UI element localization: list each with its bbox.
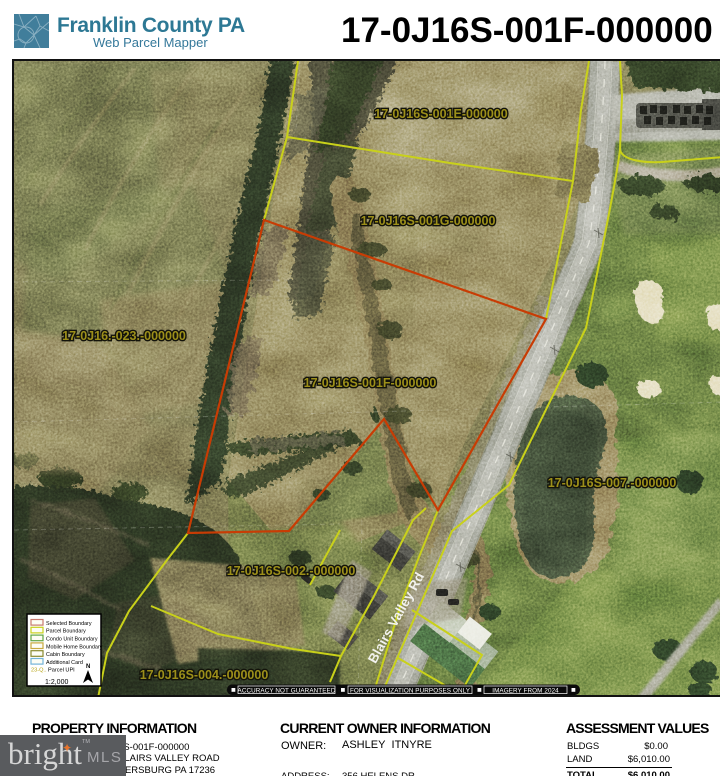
svg-text:1:2,000: 1:2,000 — [45, 679, 68, 686]
svg-text:Parcel UPI: Parcel UPI — [48, 668, 75, 674]
svg-text:Additional Card: Additional Card — [46, 660, 83, 666]
svg-text:17-0J16S-007.-000000: 17-0J16S-007.-000000 — [548, 476, 677, 490]
svg-text:Mobile Home Boundary: Mobile Home Boundary — [46, 644, 103, 650]
svg-text:17-0J16S-001G-000000: 17-0J16S-001G-000000 — [361, 214, 496, 228]
svg-text:FOR VISUALIZATION PURPOSES ONL: FOR VISUALIZATION PURPOSES ONLY — [350, 687, 471, 694]
svg-text:17-0J16.-023.-000000: 17-0J16.-023.-000000 — [62, 329, 186, 343]
svg-text:Condo Unit Boundary: Condo Unit Boundary — [46, 637, 98, 643]
svg-text:17-0J16S-004.-000000: 17-0J16S-004.-000000 — [140, 668, 269, 682]
svg-text:N: N — [86, 664, 90, 670]
svg-text:17-0J16S-002.-000000: 17-0J16S-002.-000000 — [227, 564, 356, 578]
svg-text:17-0J16S-001F-000000: 17-0J16S-001F-000000 — [304, 376, 437, 390]
svg-text:23-Q..: 23-Q.. — [31, 668, 47, 674]
svg-text:17-0J16S-001E-000000: 17-0J16S-001E-000000 — [374, 107, 507, 121]
svg-text:IMAGERY FROM 2024: IMAGERY FROM 2024 — [492, 687, 559, 694]
svg-text:Parcel Boundary: Parcel Boundary — [46, 629, 86, 635]
svg-text:Cabin Boundary: Cabin Boundary — [46, 652, 85, 658]
svg-text:ACCURACY NOT GUARANTEED: ACCURACY NOT GUARANTEED — [238, 687, 336, 694]
svg-text:Selected Boundary: Selected Boundary — [46, 621, 92, 627]
